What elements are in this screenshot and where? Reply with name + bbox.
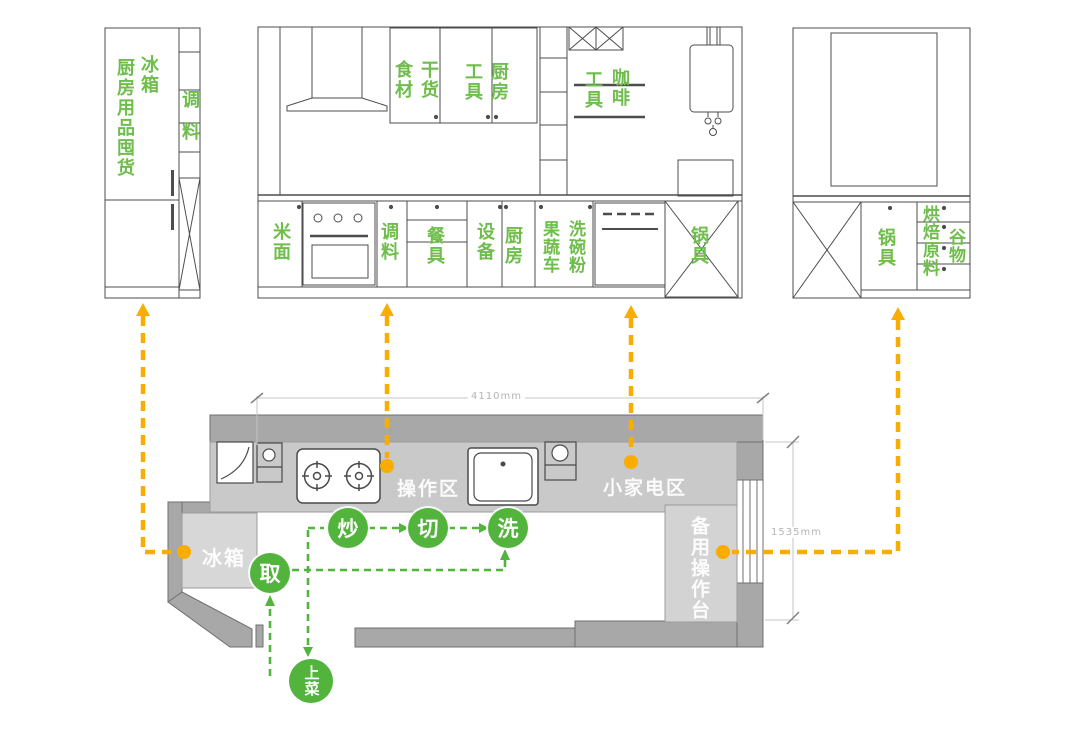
label-ingredients: 食材 <box>393 60 411 100</box>
label-pots-middle: 锅具 <box>689 226 707 266</box>
label-seasoning-left-elev: 调料 <box>180 90 198 154</box>
step-take-label: 取 <box>260 558 281 588</box>
zone-operation-area: 操作区 <box>397 474 460 501</box>
dimension-width: 4110mm <box>468 391 525 402</box>
label-dry-goods: 干货 <box>419 60 437 100</box>
label-equipment: 设备 <box>475 222 493 262</box>
step-cut-badge: 切 <box>408 508 448 548</box>
zone-appliance-area: 小家电区 <box>603 473 687 500</box>
zone-fridge: 冰箱 <box>202 542 246 571</box>
label-pots-right: 锅具 <box>876 228 894 268</box>
label-fridge-left-elev: 冰箱 <box>139 55 157 95</box>
step-fry-label: 炒 <box>338 513 359 543</box>
label-seasoning-base: 调料 <box>379 222 397 262</box>
label-tools-upper: 工具 <box>463 62 481 102</box>
floor-plan-window <box>737 480 763 583</box>
label-coffee: 咖啡 <box>610 68 628 108</box>
label-kitchen-stock: 厨房用品囤货 <box>115 58 133 178</box>
step-serve-label: 上菜 <box>304 665 319 697</box>
step-wash-badge: 洗 <box>488 508 528 548</box>
label-grains: 谷物 <box>946 228 963 264</box>
dimension-depth: 1535mm <box>768 527 825 538</box>
zone-backup-counter: 备用操作台 <box>686 516 713 621</box>
label-kitchen-upper: 厨房 <box>489 62 507 102</box>
step-take-badge: 取 <box>250 553 290 593</box>
label-rice-flour: 米面 <box>271 222 289 262</box>
step-wash-label: 洗 <box>498 513 519 543</box>
label-tools-shelf: 工具 <box>583 70 601 110</box>
step-cut-label: 切 <box>418 513 439 543</box>
workflow-arrows <box>270 528 505 676</box>
sink <box>468 448 538 505</box>
kitchen-layout-diagram: 冰箱 厨房用品囤货 调料 食材 干货 工具 厨房 工具 咖啡 米面 调料 餐具 … <box>0 0 1080 729</box>
label-veg-cart: 果蔬车 <box>540 220 557 274</box>
label-wash-powder: 洗碗粉 <box>566 220 583 274</box>
label-baking: 烘焙原料 <box>920 205 937 277</box>
diagram-linework <box>0 0 1080 729</box>
step-fry-badge: 炒 <box>328 508 368 548</box>
step-serve-badge: 上菜 <box>289 659 333 703</box>
label-tableware: 餐具 <box>425 226 443 266</box>
label-kitchen-base: 厨房 <box>503 226 521 266</box>
